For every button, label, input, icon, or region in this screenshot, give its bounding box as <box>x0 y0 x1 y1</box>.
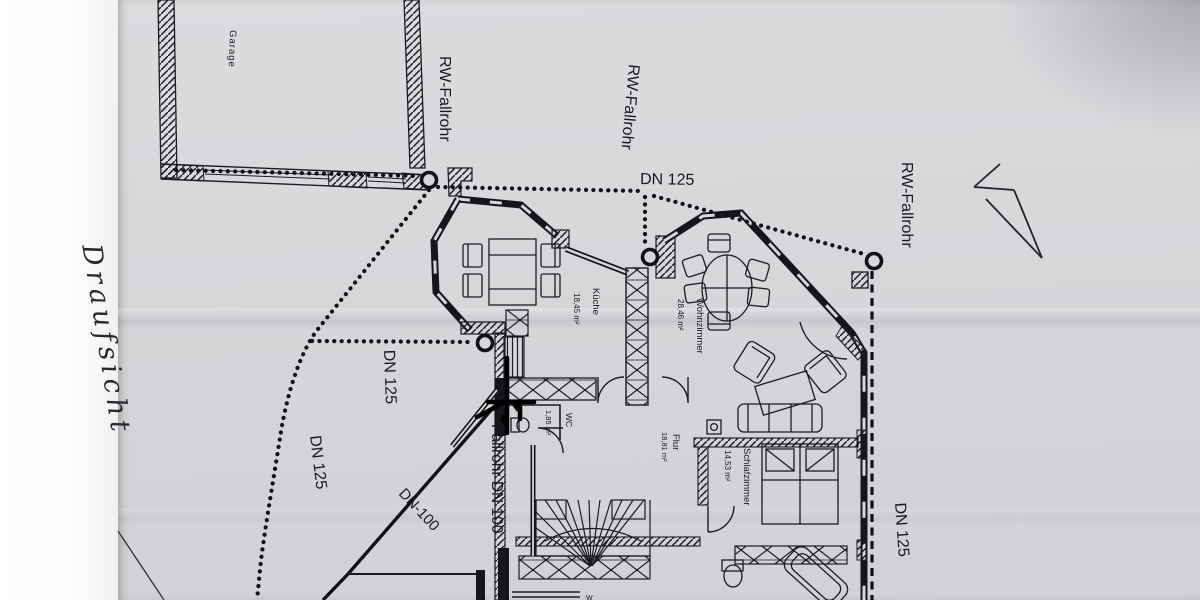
label-wc: WC <box>564 413 574 427</box>
label-dn125-suedwest: DN 125 <box>306 434 329 490</box>
label-flur: Flur <box>670 434 681 450</box>
label-rw-fallrohr-mitte: RW-Fallrohr <box>617 64 641 151</box>
corner-pier <box>448 168 472 196</box>
label-dn125-rechts: DN 125 <box>891 502 912 557</box>
label-kueche-area: 18,45 m² <box>572 293 581 325</box>
label-rw-fallrohr-rechts: RW-Fallrohr <box>898 162 915 248</box>
plan-drawing: Garage RW-Fallrohr RW-Fallrohr DN 125 RW… <box>0 0 1200 600</box>
label-wohnzimmer-area: 28,46 m² <box>676 299 685 331</box>
drain-marker <box>852 272 868 288</box>
label-flur-area: 18,81 m² <box>660 432 669 462</box>
label-rw-fallrohr-garage: RW-Fallrohr <box>436 56 453 142</box>
downpipe-symbol <box>422 173 437 188</box>
label-schlafzimmer-area: 14,53 m² <box>723 450 732 482</box>
plan-labels: Garage RW-Fallrohr RW-Fallrohr DN 125 RW… <box>226 30 915 600</box>
garage-walls <box>158 0 472 196</box>
label-kueche: Küche <box>590 288 601 315</box>
downpipe-symbol <box>643 250 658 265</box>
boundary-line <box>118 531 164 600</box>
downpipe-symbol <box>478 336 493 351</box>
north-arrow-icon <box>974 164 1042 258</box>
label-cut-off: W <box>586 595 593 600</box>
downpipe-symbol <box>867 254 882 269</box>
label-wc-area: 1,85 m² <box>544 410 553 436</box>
label-fallrohr-dn100: Fallrohr DN 100 <box>488 424 505 534</box>
label-dn125-oben: DN 125 <box>640 171 695 189</box>
plumbing-shaft <box>626 268 648 405</box>
label-wohnzimmer: Wohnzimmer <box>694 298 705 354</box>
label-dn125-west: DN 125 <box>380 350 399 405</box>
label-garage: Garage <box>226 30 238 68</box>
bay-table <box>489 239 536 305</box>
sofa <box>738 404 822 432</box>
floor-plan-photo: Draufsicht <box>0 0 1200 600</box>
label-schlafzimmer: Schlafzimmer <box>741 448 752 506</box>
staircase <box>536 500 650 566</box>
